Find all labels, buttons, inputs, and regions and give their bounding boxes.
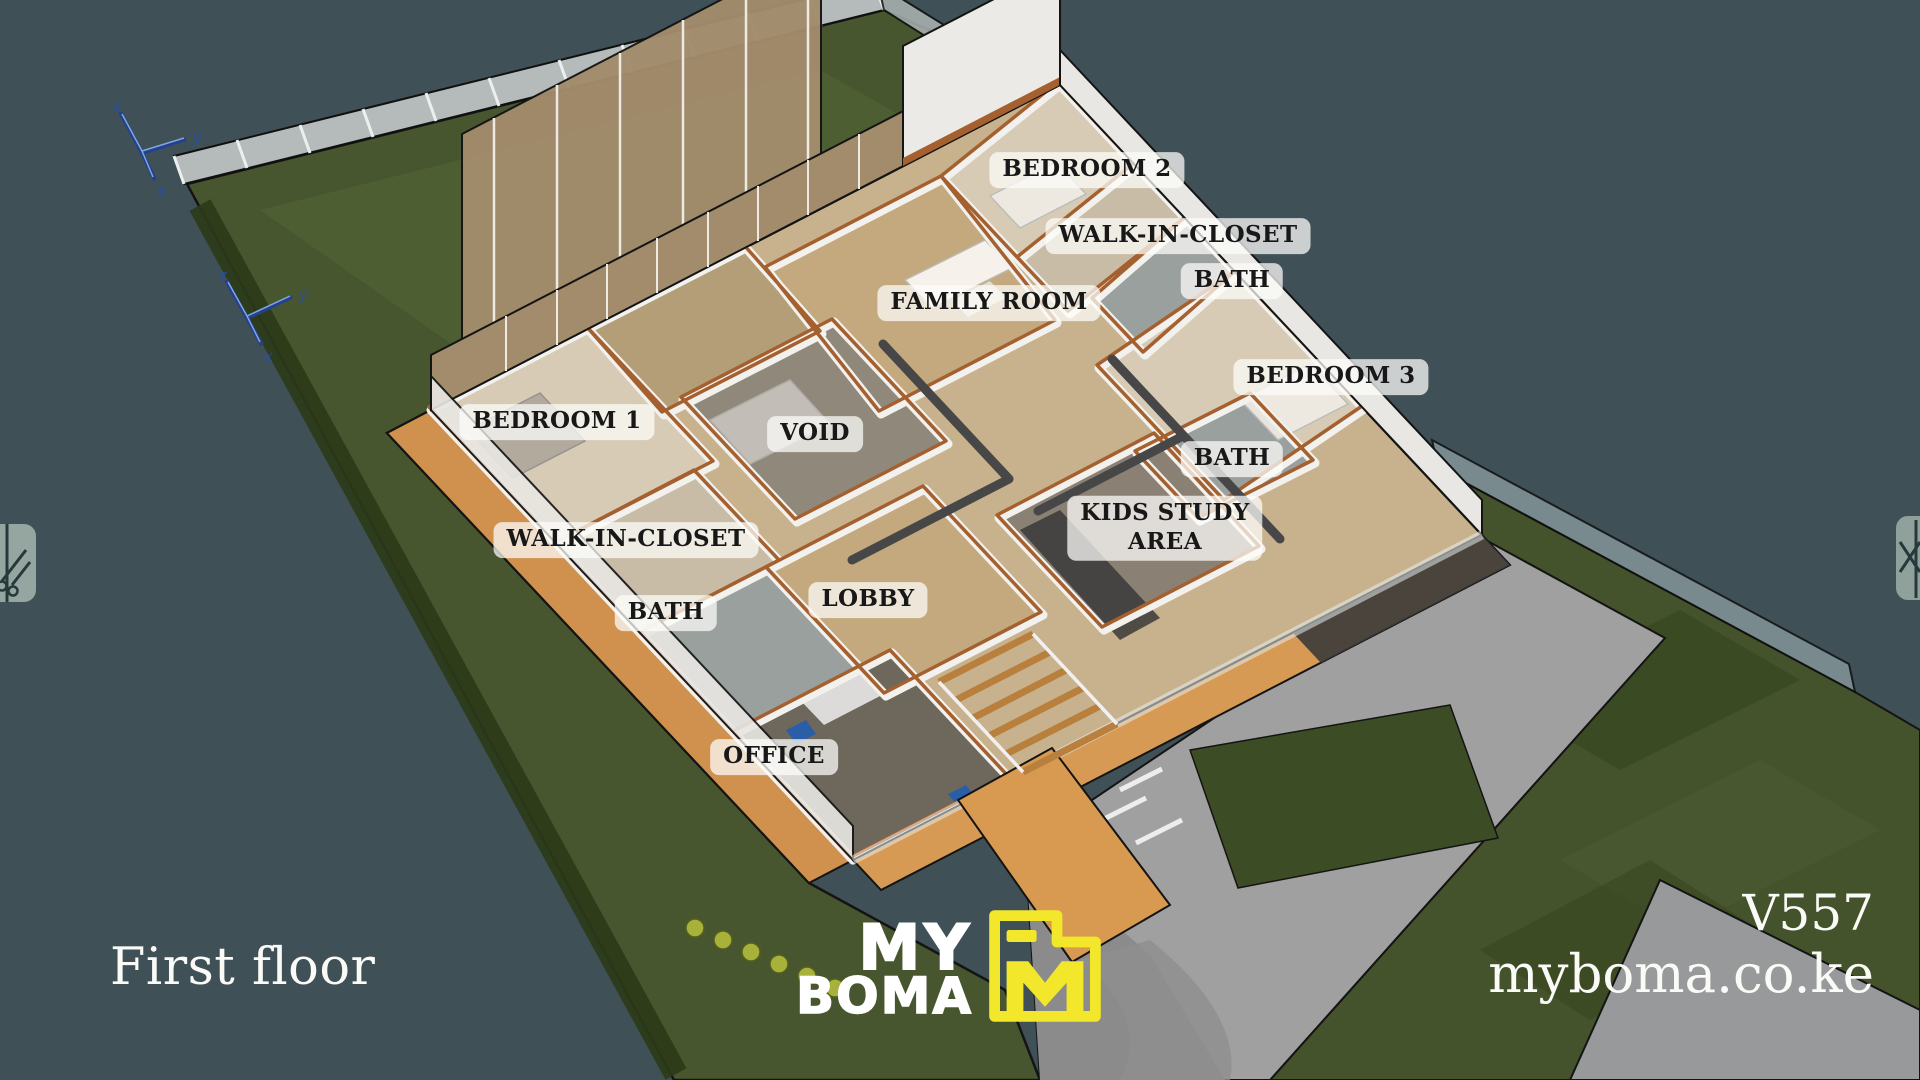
floor-title: First floor (110, 938, 375, 997)
plan-code: V557 (1488, 886, 1874, 941)
floorplan-render-view: z y x z y x BEDROOM 2 WALK-IN-CLOSET BAT… (0, 0, 1920, 1080)
website-url[interactable]: myboma.co.ke (1488, 941, 1874, 1010)
svg-text:z: z (218, 265, 228, 284)
section-plane-marker-left[interactable] (0, 524, 36, 602)
svg-text:y: y (297, 284, 308, 303)
svg-text:z: z (112, 97, 122, 116)
room-label-lobby: LOBBY (808, 582, 927, 618)
plan-info: V557 myboma.co.ke (1488, 886, 1874, 1010)
svg-text:y: y (191, 126, 202, 145)
room-label-bedroom-1: BEDROOM 1 (459, 404, 654, 440)
room-label-walk-in-closet-2: WALK-IN-CLOSET (1046, 218, 1311, 254)
room-label-void: VOID (767, 416, 863, 452)
room-label-office: OFFICE (710, 739, 838, 775)
room-label-bath-2: BATH (1181, 263, 1283, 299)
section-plane-marker-right[interactable] (1896, 516, 1920, 600)
room-label-bedroom-3: BEDROOM 3 (1233, 359, 1428, 395)
room-label-kids-study-area: KIDS STUDY AREA (1067, 496, 1262, 561)
svg-text:x: x (264, 346, 273, 365)
room-label-walk-in-closet-1: WALK-IN-CLOSET (494, 522, 759, 558)
svg-text:x: x (157, 181, 166, 200)
m-building-icon (985, 906, 1105, 1026)
myboma-logo: MY BOMA (796, 906, 1105, 1026)
room-label-bath-3: BATH (1181, 441, 1283, 477)
room-label-bath-1: BATH (615, 595, 717, 631)
logo-word-boma: BOMA (796, 974, 973, 1018)
room-label-bedroom-2: BEDROOM 2 (989, 152, 1184, 188)
logo-wordmark: MY BOMA (796, 922, 973, 1018)
room-label-family-room: FAMILY ROOM (877, 285, 1100, 321)
